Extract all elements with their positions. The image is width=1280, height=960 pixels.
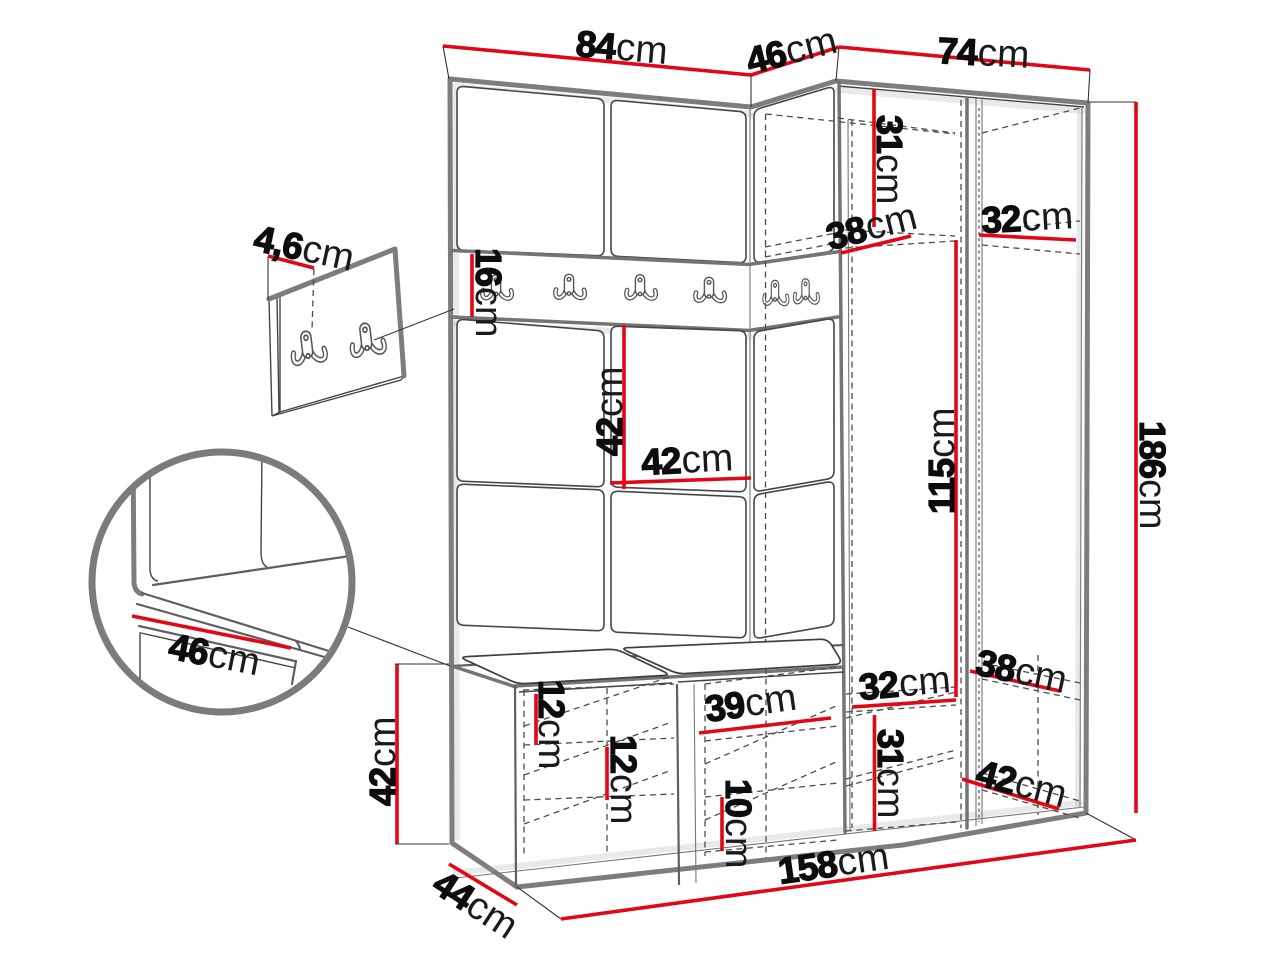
svg-text:32cm: 32cm: [980, 194, 1074, 242]
svg-text:115cm: 115cm: [921, 408, 963, 514]
svg-text:16cm: 16cm: [467, 248, 509, 337]
svg-text:12cm: 12cm: [602, 735, 644, 824]
svg-text:31cm: 31cm: [868, 115, 910, 204]
svg-text:10cm: 10cm: [717, 779, 759, 868]
svg-text:31cm: 31cm: [869, 729, 911, 818]
svg-text:74cm: 74cm: [937, 29, 1031, 77]
svg-text:42cm: 42cm: [589, 367, 631, 456]
svg-text:42cm: 42cm: [362, 717, 404, 806]
svg-text:186cm: 186cm: [1131, 421, 1173, 529]
svg-text:12cm: 12cm: [530, 680, 572, 769]
svg-text:32cm: 32cm: [857, 658, 952, 709]
svg-text:42cm: 42cm: [640, 436, 734, 484]
